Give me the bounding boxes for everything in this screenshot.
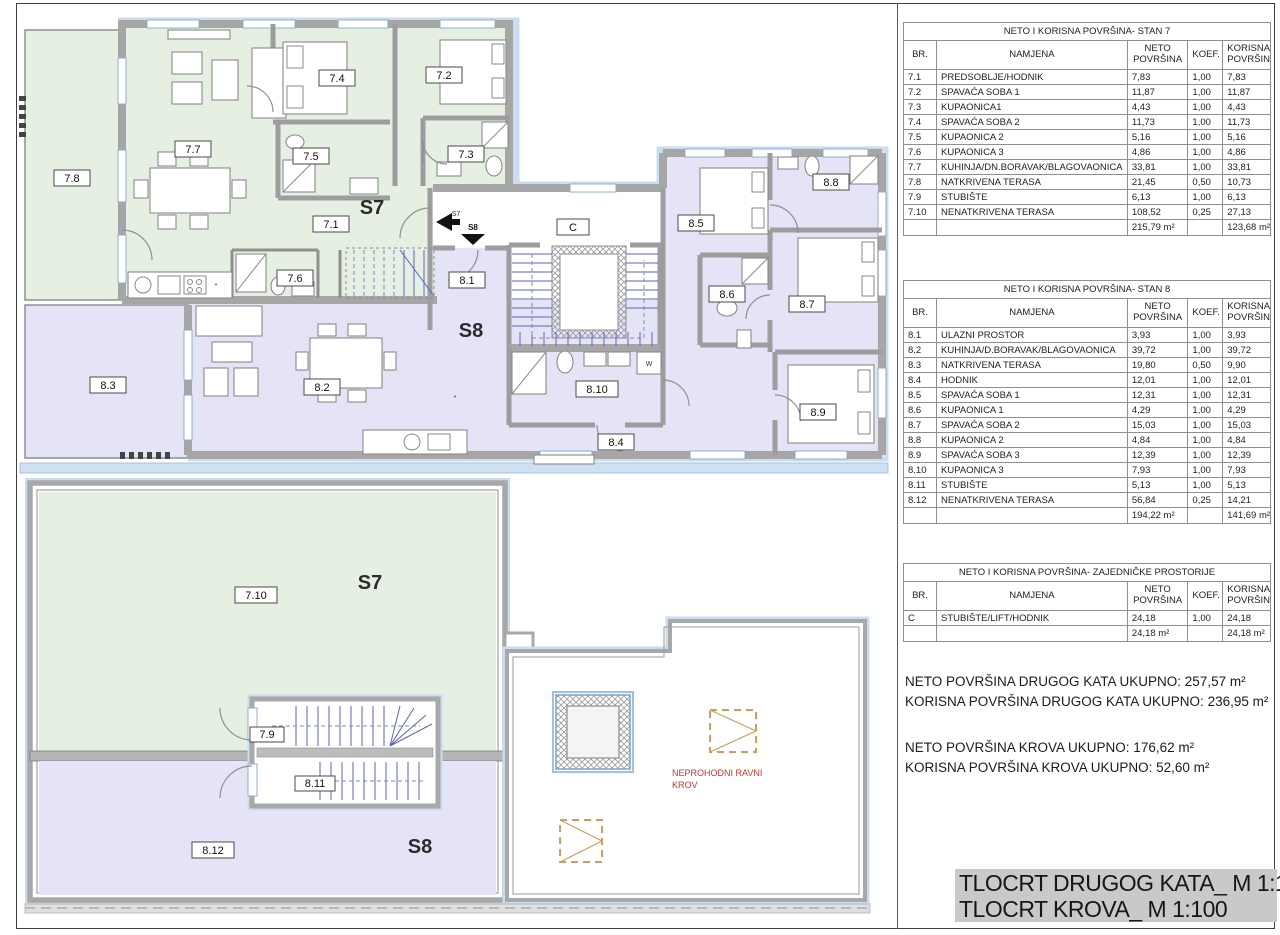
table-cell: 5,13 — [1127, 478, 1188, 493]
table-cell: 7,83 — [1223, 70, 1271, 85]
table-cell: 12,39 — [1127, 448, 1188, 463]
table-total-korisna: 141,69 m² — [1223, 508, 1271, 524]
table-header-cell: NETO POVRŠINA — [1127, 299, 1188, 328]
roof-plan: NEPROHODNI RAVNI KROV 7.10 S7 7.9 8.11 8… — [25, 483, 870, 913]
table-row: 8.5SPAVAĆA SOBA 112,311,0012,31 — [904, 388, 1271, 403]
table-cell: KUPAONICA 3 — [937, 463, 1128, 478]
drawing-title-line1: TLOCRT DRUGOG KATA_ M 1:100 — [959, 871, 1277, 897]
drawing-title-line2: TLOCRT KROVA_ M 1:100 — [959, 897, 1277, 923]
svg-text:8.1: 8.1 — [459, 275, 474, 287]
table-cell: 7.2 — [904, 85, 937, 100]
svg-text:8.2: 8.2 — [314, 382, 329, 394]
room-label-7-10: 7.10 — [235, 587, 277, 603]
table-row: 8.9SPAVAĆA SOBA 312,391,0012,39 — [904, 448, 1271, 463]
table-cell: KUPAONICA 2 — [937, 130, 1128, 145]
table-cell: KUPAONICA 2 — [937, 433, 1128, 448]
summary-neto-kata: NETO POVRŠINA DRUGOG KATA UKUPNO: 257,57… — [905, 674, 1277, 689]
room-label-7-7: 7.7 — [175, 141, 211, 157]
svg-text:8.9: 8.9 — [810, 407, 825, 419]
table-row: 8.11STUBIŠTE5,131,005,13 — [904, 478, 1271, 493]
table-total-row: 215,79 m²123,68 m² — [904, 220, 1271, 236]
appliance-asterisk: * — [454, 395, 457, 402]
table-cell: 8.5 — [904, 388, 937, 403]
summary-korisna-kata: KORISNA POVRŠINA DRUGOG KATA UKUPNO: 236… — [905, 694, 1277, 709]
table-cell: SPAVAĆA SOBA 1 — [937, 85, 1128, 100]
room-label-7-1: 7.1 — [313, 216, 349, 232]
table-cell: 1,00 — [1188, 388, 1223, 403]
room-label-8-5: 8.5 — [678, 215, 714, 231]
table-cell: 1,00 — [1188, 403, 1223, 418]
table-row: 8.10KUPAONICA 37,931,007,93 — [904, 463, 1271, 478]
svg-text:8.6: 8.6 — [719, 289, 734, 301]
table-cell: 56,84 — [1127, 493, 1188, 508]
table-cell: 1,00 — [1188, 70, 1223, 85]
table-header-cell: NAMJENA — [937, 41, 1128, 70]
svg-text:7.7: 7.7 — [185, 144, 200, 156]
table-cell: 1,00 — [1188, 100, 1223, 115]
table-cell: 7.8 — [904, 175, 937, 190]
table-cell: 8.6 — [904, 403, 937, 418]
table-cell: 12,31 — [1223, 388, 1271, 403]
table-cell: 8.1 — [904, 328, 937, 343]
table-cell: 11,87 — [1127, 85, 1188, 100]
table-cell: 7.6 — [904, 145, 937, 160]
table-cell — [1188, 220, 1223, 236]
table-cell: 8.9 — [904, 448, 937, 463]
table-row: 8.1ULAZNI PROSTOR3,931,003,93 — [904, 328, 1271, 343]
table-cell: 39,72 — [1223, 343, 1271, 358]
table-row: 7.3KUPAONICA14,431,004,43 — [904, 100, 1271, 115]
table-row: 8.6KUPAONICA 14,291,004,29 — [904, 403, 1271, 418]
table-stan-7: NETO I KORISNA POVRŠINA- STAN 7BR.NAMJEN… — [903, 22, 1271, 236]
table-cell: 19,80 — [1127, 358, 1188, 373]
table-header-cell: BR. — [904, 41, 937, 70]
table-cell: 9,90 — [1223, 358, 1271, 373]
table-cell: 7.9 — [904, 190, 937, 205]
table-cell: 1,00 — [1188, 145, 1223, 160]
svg-text:7.1: 7.1 — [323, 219, 338, 231]
room-label-8-12: 8.12 — [192, 842, 234, 858]
table-cell: 8.2 — [904, 343, 937, 358]
table-row: 7.8NATKRIVENA TERASA21,450,5010,73 — [904, 175, 1271, 190]
table-cell: 7.10 — [904, 205, 937, 220]
table-cell: STUBIŠTE — [937, 478, 1128, 493]
svg-text:7.3: 7.3 — [458, 149, 473, 161]
table-title: NETO I KORISNA POVRŠINA- STAN 7 — [904, 23, 1271, 41]
room-label-7-5: 7.5 — [293, 148, 329, 164]
table-total-korisna: 123,68 m² — [1223, 220, 1271, 236]
table-cell: 12,01 — [1223, 373, 1271, 388]
table-cell: 7.3 — [904, 100, 937, 115]
table-header-cell: KORISNA POVRŠINA — [1223, 299, 1271, 328]
table-common-spaces: NETO I KORISNA POVRŠINA- ZAJEDNIČKE PROS… — [903, 563, 1271, 642]
table-cell: NATKRIVENA TERASA — [937, 358, 1128, 373]
summary-neto-krova: NETO POVRŠINA KROVA UKUPNO: 176,62 m² — [905, 740, 1277, 755]
table-cell: SPAVAĆA SOBA 2 — [937, 115, 1128, 130]
table-cell: 7.4 — [904, 115, 937, 130]
table-cell: 1,00 — [1188, 160, 1223, 175]
table-cell: 7,93 — [1223, 463, 1271, 478]
table-header-cell: KOEF. — [1188, 299, 1223, 328]
table-cell: 1,00 — [1188, 328, 1223, 343]
table-cell: 15,03 — [1127, 418, 1188, 433]
table-row: CSTUBIŠTE/LIFT/HODNIK24,181,0024,18 — [904, 611, 1271, 626]
room-terrace-7-8 — [25, 30, 122, 300]
apartment-label-s7: S7 — [360, 197, 384, 219]
svg-text:7.5: 7.5 — [303, 151, 318, 163]
table-cell: 1,00 — [1188, 190, 1223, 205]
table-cell: 3,93 — [1223, 328, 1271, 343]
svg-text:C: C — [569, 222, 577, 234]
svg-text:8.8: 8.8 — [823, 177, 838, 189]
area-table: NETO I KORISNA POVRŠINA- ZAJEDNIČKE PROS… — [903, 563, 1271, 642]
table-header-cell: KORISNA POVRŠINA — [1223, 41, 1271, 70]
svg-text:8.12: 8.12 — [202, 845, 223, 857]
table-cell: 0,25 — [1188, 493, 1223, 508]
table-cell: 1,00 — [1188, 463, 1223, 478]
room-label-8-10: 8.10 — [576, 381, 618, 397]
table-cell: 8.3 — [904, 358, 937, 373]
table-title: NETO I KORISNA POVRŠINA- ZAJEDNIČKE PROS… — [904, 564, 1271, 582]
table-cell: ULAZNI PROSTOR — [937, 328, 1128, 343]
table-cell: 7,93 — [1127, 463, 1188, 478]
bottom-blue-band — [20, 463, 888, 473]
table-cell: 7.5 — [904, 130, 937, 145]
svg-text:8.5: 8.5 — [688, 218, 703, 230]
room-label-8-8: 8.8 — [813, 174, 849, 190]
table-cell: 5,13 — [1223, 478, 1271, 493]
table-cell: 8.7 — [904, 418, 937, 433]
table-cell: 8.4 — [904, 373, 937, 388]
room-entry-8-1 — [433, 248, 509, 330]
roof-label-s7: S7 — [358, 572, 382, 594]
table-cell: 7,83 — [1127, 70, 1188, 85]
area-summary: NETO POVRŠINA DRUGOG KATA UKUPNO: 257,57… — [905, 674, 1277, 780]
table-cell: 4,29 — [1127, 403, 1188, 418]
table-cell: 5,16 — [1127, 130, 1188, 145]
table-cell: 12,31 — [1127, 388, 1188, 403]
room-label-c: C — [557, 219, 589, 235]
table-cell: 1,00 — [1188, 85, 1223, 100]
table-cell: 6,13 — [1223, 190, 1271, 205]
room-label-8-9: 8.9 — [800, 404, 836, 420]
table-cell: 24,18 — [1127, 611, 1188, 626]
table-cell: 1,00 — [1188, 418, 1223, 433]
table-row: 8.3NATKRIVENA TERASA19,800,509,90 — [904, 358, 1271, 373]
table-total-neto: 24,18 m² — [1127, 626, 1188, 642]
table-cell: 24,18 — [1223, 611, 1271, 626]
table-cell: 4,43 — [1223, 100, 1271, 115]
dining-table-icon — [150, 168, 230, 213]
table-cell: 15,03 — [1223, 418, 1271, 433]
table-cell: 12,39 — [1223, 448, 1271, 463]
table-row: 8.12NENATKRIVENA TERASA56,840,2514,21 — [904, 493, 1271, 508]
room-label-8-11: 8.11 — [295, 776, 335, 791]
table-cell — [1188, 626, 1223, 642]
table-total-korisna: 24,18 m² — [1223, 626, 1271, 642]
table-cell: 8.8 — [904, 433, 937, 448]
table-cell: 14,21 — [1223, 493, 1271, 508]
table-total-neto: 215,79 m² — [1127, 220, 1188, 236]
table-cell: 11,73 — [1223, 115, 1271, 130]
table-cell: 0,25 — [1188, 205, 1223, 220]
table-header-cell: NETO POVRŠINA — [1127, 41, 1188, 70]
room-label-8-2: 8.2 — [304, 379, 340, 395]
svg-text:7.9: 7.9 — [259, 729, 274, 741]
table-cell: KUHINJA/D.BORAVAK/BLAGOVAONICA — [937, 343, 1128, 358]
kitchen-s7: * — [128, 272, 232, 298]
table-cell — [937, 508, 1128, 524]
table-cell — [904, 626, 937, 642]
table-cell: SPAVAĆA SOBA 2 — [937, 418, 1128, 433]
table-total-neto: 194,22 m² — [1127, 508, 1188, 524]
table-cell: NENATKRIVENA TERASA — [937, 493, 1128, 508]
table-row: 8.7SPAVAĆA SOBA 215,031,0015,03 — [904, 418, 1271, 433]
area-table: NETO I KORISNA POVRŠINA- STAN 7BR.NAMJEN… — [903, 22, 1271, 236]
flat-roof-note-line2: KROV — [672, 780, 698, 790]
table-row: 7.2SPAVAĆA SOBA 111,871,0011,87 — [904, 85, 1271, 100]
table-total-row: 24,18 m²24,18 m² — [904, 626, 1271, 642]
room-label-8-3: 8.3 — [90, 377, 126, 393]
table-cell: 12,01 — [1127, 373, 1188, 388]
roof-label-s8: S8 — [408, 836, 432, 858]
table-row: 7.1PREDSOBLJE/HODNIK7,831,007,83 — [904, 70, 1271, 85]
room-label-8-1: 8.1 — [449, 272, 485, 288]
title-block: TLOCRT DRUGOG KATA_ M 1:100 TLOCRT KROVA… — [955, 869, 1277, 922]
svg-text:7.10: 7.10 — [245, 590, 266, 602]
table-cell: 108,52 — [1127, 205, 1188, 220]
table-cell — [904, 508, 937, 524]
table-cell: 0,50 — [1188, 358, 1223, 373]
svg-text:S8: S8 — [468, 223, 478, 232]
table-header-cell: NETO POVRŠINA — [1127, 582, 1188, 611]
table-cell — [1188, 508, 1223, 524]
svg-text:8.11: 8.11 — [305, 778, 326, 790]
table-cell: HODNIK — [937, 373, 1128, 388]
svg-text:8.10: 8.10 — [586, 384, 607, 396]
table-header-cell: KORISNA POVRŠINA — [1223, 582, 1271, 611]
table-header-cell: BR. — [904, 299, 937, 328]
svg-text:7.4: 7.4 — [329, 73, 344, 85]
table-cell: 27,13 — [1223, 205, 1271, 220]
table-cell: 8.10 — [904, 463, 937, 478]
table-cell: SPAVAĆA SOBA 1 — [937, 388, 1128, 403]
table-header-cell: KOEF. — [1188, 41, 1223, 70]
table-cell: 4,84 — [1223, 433, 1271, 448]
room-label-7-4: 7.4 — [319, 70, 355, 86]
table-cell: PREDSOBLJE/HODNIK — [937, 70, 1128, 85]
table-cell: NATKRIVENA TERASA — [937, 175, 1128, 190]
table-cell: STUBIŠTE — [937, 190, 1128, 205]
table-row: 7.7KUHINJA/DN.BORAVAK/BLAGOVAONICA33,811… — [904, 160, 1271, 175]
room-label-7-8: 7.8 — [54, 170, 90, 186]
table-row: 7.4SPAVAĆA SOBA 211,731,0011,73 — [904, 115, 1271, 130]
svg-text:8.3: 8.3 — [100, 380, 115, 392]
floor-plan-sheet: { "colors": { "s7_fill": "#e6f0e2", "s8_… — [0, 0, 1280, 935]
table-cell: 8.12 — [904, 493, 937, 508]
room-label-7-3: 7.3 — [448, 146, 484, 162]
table-cell: NENATKRIVENA TERASA — [937, 205, 1128, 220]
table-cell: 11,73 — [1127, 115, 1188, 130]
summary-korisna-krova: KORISNA POVRŠINA KROVA UKUPNO: 52,60 m² — [905, 760, 1277, 775]
table-row: 7.5KUPAONICA 25,161,005,16 — [904, 130, 1271, 145]
table-cell: 11,87 — [1223, 85, 1271, 100]
room-label-8-6: 8.6 — [709, 286, 745, 302]
table-cell: SPAVAĆA SOBA 3 — [937, 448, 1128, 463]
table-header-cell: NAMJENA — [937, 299, 1128, 328]
table-row: 8.4HODNIK12,011,0012,01 — [904, 373, 1271, 388]
table-cell: 1,00 — [1188, 478, 1223, 493]
table-cell — [937, 220, 1128, 236]
table-title: NETO I KORISNA POVRŠINA- STAN 8 — [904, 281, 1271, 299]
bed-icon-8-7 — [798, 238, 878, 302]
svg-text:8.7: 8.7 — [799, 299, 814, 311]
table-cell: 1,00 — [1188, 611, 1223, 626]
table-row: 7.6KUPAONICA 34,861,004,86 — [904, 145, 1271, 160]
table-cell: 0,50 — [1188, 175, 1223, 190]
room-label-7-2: 7.2 — [426, 67, 462, 83]
svg-text:7.6: 7.6 — [287, 273, 302, 285]
room-label-8-7: 8.7 — [789, 296, 825, 312]
table-row: 8.8KUPAONICA 24,841,004,84 — [904, 433, 1271, 448]
table-cell: 5,16 — [1223, 130, 1271, 145]
svg-text:7.2: 7.2 — [436, 70, 451, 82]
table-cell: 4,86 — [1223, 145, 1271, 160]
table-cell: 4,29 — [1223, 403, 1271, 418]
room-label-7-6: 7.6 — [277, 270, 313, 286]
table-cell: 4,43 — [1127, 100, 1188, 115]
table-cell: KUPAONICA 1 — [937, 403, 1128, 418]
table-cell: C — [904, 611, 937, 626]
table-cell: 8.11 — [904, 478, 937, 493]
table-cell: 10,73 — [1223, 175, 1271, 190]
area-table: NETO I KORISNA POVRŠINA- STAN 8BR.NAMJEN… — [903, 280, 1271, 524]
room-label-8-4: 8.4 — [598, 434, 634, 450]
table-cell: 1,00 — [1188, 130, 1223, 145]
table-cell: 4,84 — [1127, 433, 1188, 448]
floor-plan-canvas: * — [0, 0, 900, 935]
table-cell: 4,86 — [1127, 145, 1188, 160]
table-cell: 1,00 — [1188, 343, 1223, 358]
table-header-cell: KOEF. — [1188, 582, 1223, 611]
table-cell: 21,45 — [1127, 175, 1188, 190]
table-cell — [937, 626, 1128, 642]
table-cell: 39,72 — [1127, 343, 1188, 358]
table-row: 7.10NENATKRIVENA TERASA108,520,2527,13 — [904, 205, 1271, 220]
washer-label: W — [646, 361, 653, 368]
table-total-row: 194,22 m²141,69 m² — [904, 508, 1271, 524]
table-row: 8.2KUHINJA/D.BORAVAK/BLAGOVAONICA39,721,… — [904, 343, 1271, 358]
table-cell: 1,00 — [1188, 115, 1223, 130]
table-cell: 33,81 — [1127, 160, 1188, 175]
upper-floor-plan: * — [19, 20, 888, 473]
table-cell — [904, 220, 937, 236]
svg-text:8.4: 8.4 — [608, 437, 623, 449]
flat-roof-note-line1: NEPROHODNI RAVNI — [672, 768, 762, 778]
skylight-icon — [553, 692, 633, 772]
apartment-label-s8: S8 — [459, 320, 483, 342]
kitchen-counter-s8 — [363, 430, 467, 454]
dishwasher-asterisk: * — [215, 283, 218, 290]
svg-text:S7: S7 — [452, 211, 461, 218]
svg-text:7.8: 7.8 — [64, 173, 79, 185]
table-cell: 1,00 — [1188, 373, 1223, 388]
table-cell: KUHINJA/DN.BORAVAK/BLAGOVAONICA — [937, 160, 1128, 175]
table-cell: KUPAONICA 3 — [937, 145, 1128, 160]
table-cell: KUPAONICA1 — [937, 100, 1128, 115]
table-cell: STUBIŠTE/LIFT/HODNIK — [937, 611, 1128, 626]
table-cell: 33,81 — [1223, 160, 1271, 175]
table-cell: 6,13 — [1127, 190, 1188, 205]
table-row: 7.9STUBIŠTE6,131,006,13 — [904, 190, 1271, 205]
table-stan-8: NETO I KORISNA POVRŠINA- STAN 8BR.NAMJEN… — [903, 280, 1271, 524]
room-label-7-9: 7.9 — [250, 727, 284, 742]
table-cell: 3,93 — [1127, 328, 1188, 343]
table-header-cell: BR. — [904, 582, 937, 611]
table-header-cell: NAMJENA — [937, 582, 1128, 611]
table-cell: 1,00 — [1188, 433, 1223, 448]
table-cell: 7.1 — [904, 70, 937, 85]
table-cell: 1,00 — [1188, 448, 1223, 463]
table-cell: 7.7 — [904, 160, 937, 175]
